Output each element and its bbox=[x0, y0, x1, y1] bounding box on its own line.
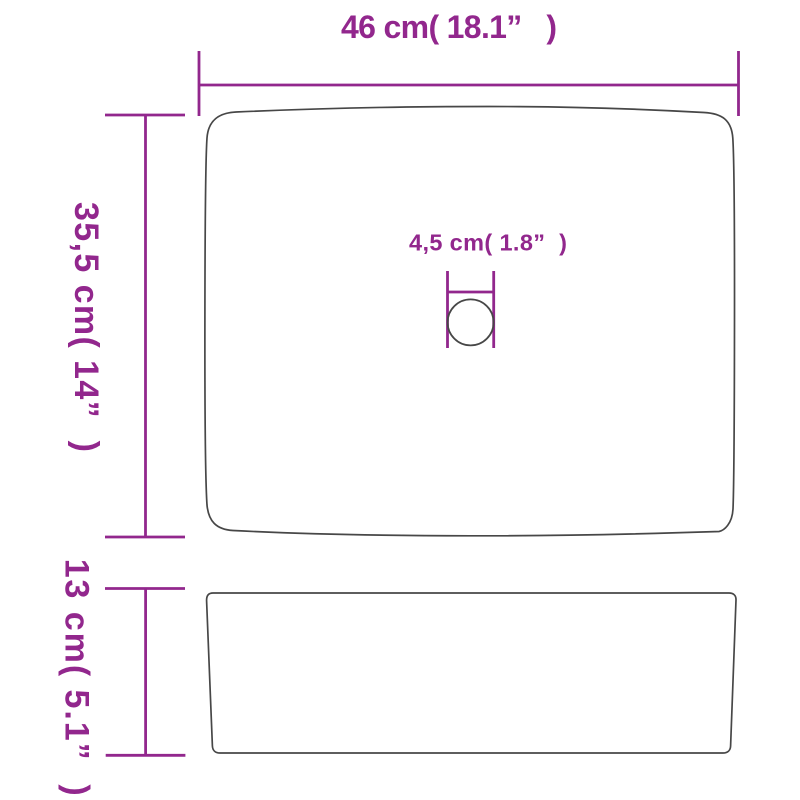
svg-text:35,5 cm( 14” ): 35,5 cm( 14” ) bbox=[67, 202, 105, 452]
svg-text:46 cm( 18.1” ): 46 cm( 18.1” ) bbox=[341, 9, 557, 45]
svg-text:4,5 cm( 1.8” ): 4,5 cm( 1.8” ) bbox=[409, 230, 567, 256]
